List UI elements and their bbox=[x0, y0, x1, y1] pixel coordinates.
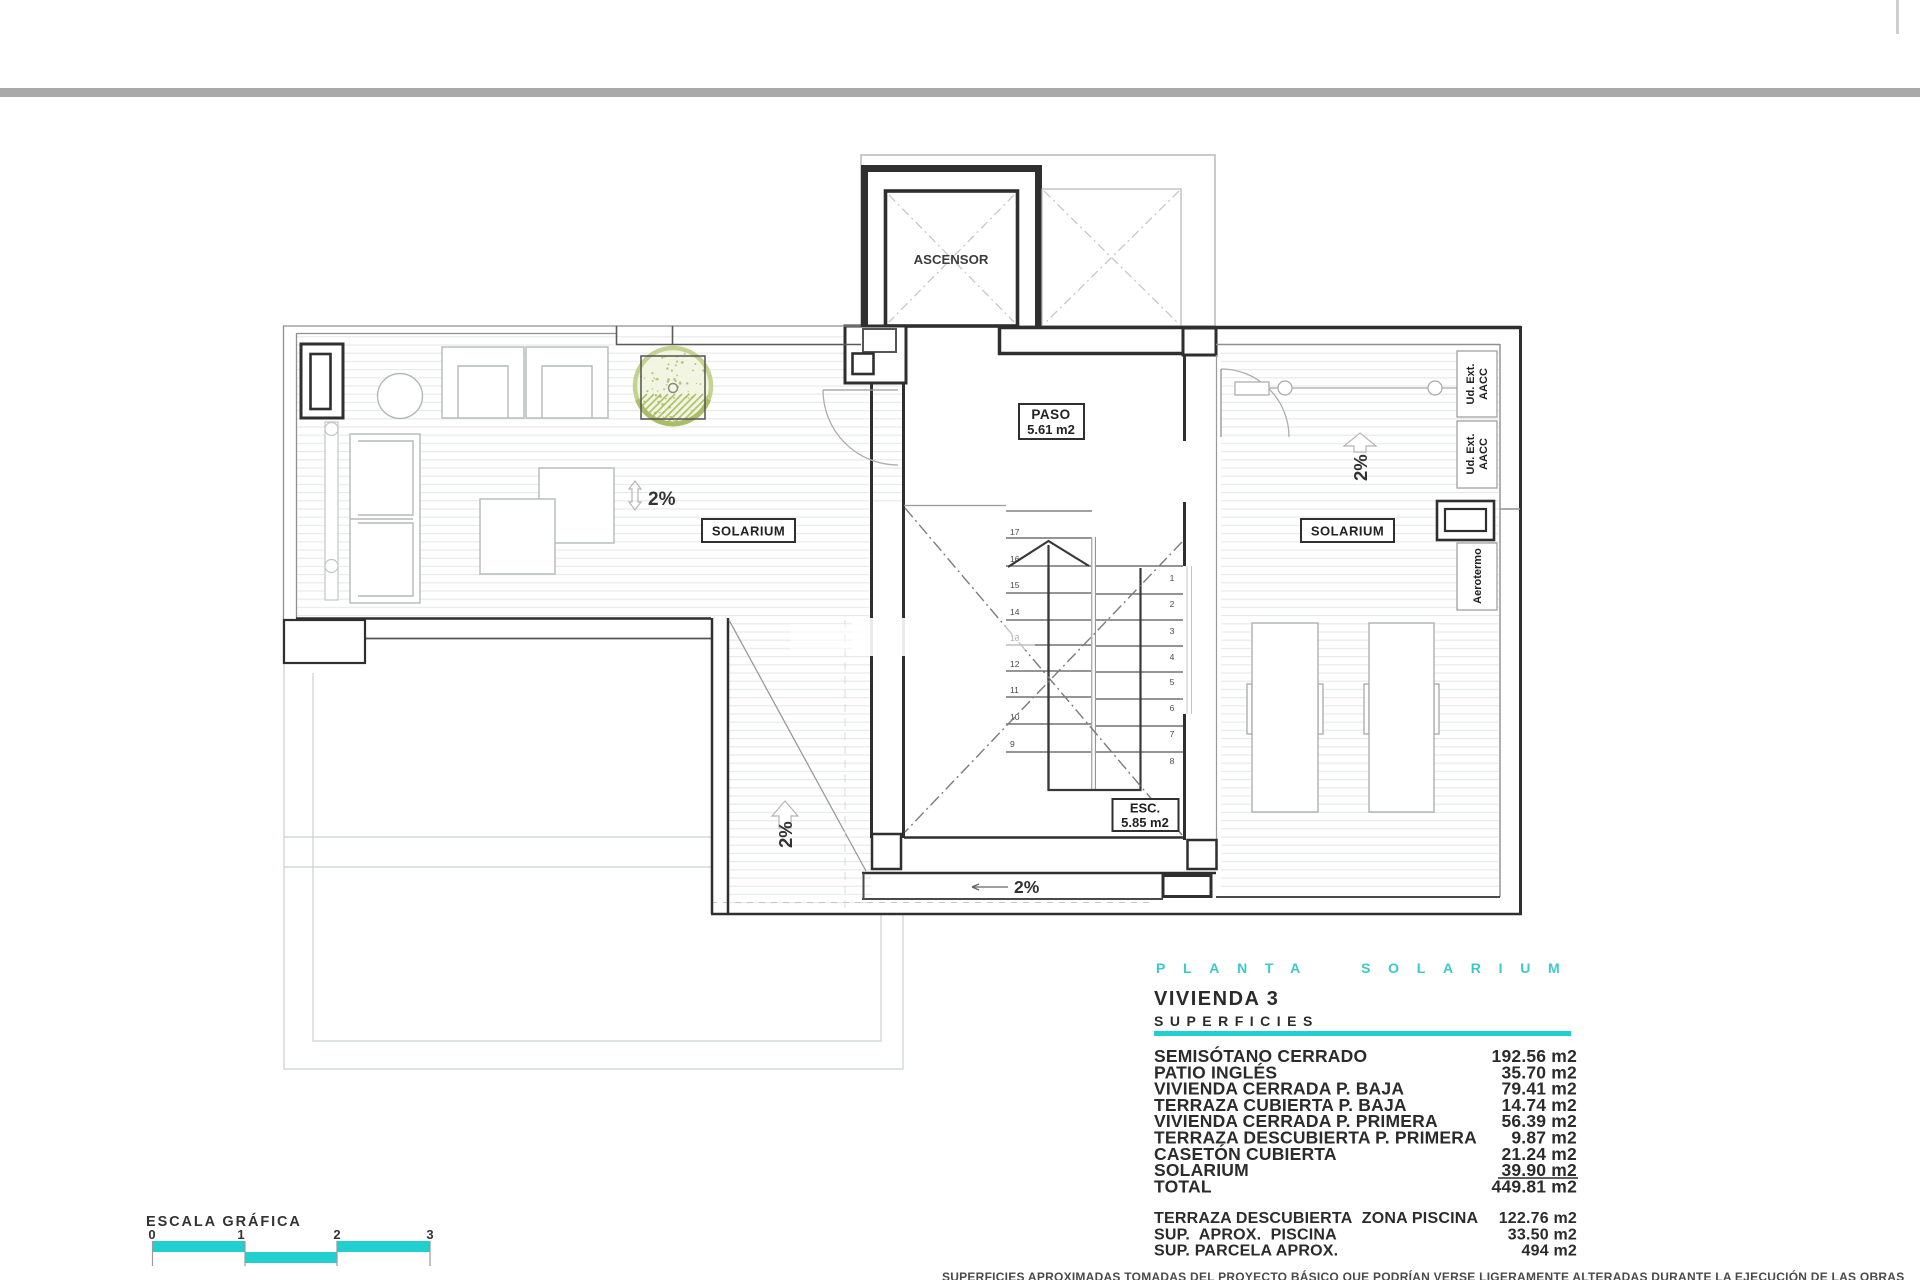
svg-text:2%: 2% bbox=[1350, 454, 1371, 481]
svg-text:TOTAL: TOTAL bbox=[1154, 1176, 1212, 1196]
svg-text:15: 15 bbox=[1010, 580, 1020, 590]
svg-text:PASO: PASO bbox=[1031, 407, 1070, 422]
svg-text:Ud. Ext.: Ud. Ext. bbox=[1465, 434, 1477, 475]
svg-text:12: 12 bbox=[1010, 659, 1020, 669]
svg-text:14: 14 bbox=[1010, 607, 1020, 617]
svg-text:Aerotermo: Aerotermo bbox=[1472, 548, 1484, 604]
svg-text:2%: 2% bbox=[775, 821, 796, 848]
svg-text:2: 2 bbox=[1170, 599, 1175, 609]
svg-text:3: 3 bbox=[1170, 626, 1175, 636]
svg-text:AACC: AACC bbox=[1478, 438, 1490, 470]
svg-text:SUPERFICIES: SUPERFICIES bbox=[1154, 1013, 1319, 1029]
svg-text:8: 8 bbox=[1170, 756, 1175, 766]
svg-text:1: 1 bbox=[237, 1227, 244, 1242]
svg-text:33.50 m2: 33.50 m2 bbox=[1508, 1226, 1577, 1243]
svg-text:ESC.: ESC. bbox=[1130, 801, 1160, 816]
svg-text:5.61 m2: 5.61 m2 bbox=[1027, 422, 1075, 437]
svg-text:SUPERFICIES APROXIMADAS TOMADA: SUPERFICIES APROXIMADAS TOMADAS DEL PROY… bbox=[942, 1269, 1904, 1280]
svg-text:494 m2: 494 m2 bbox=[1522, 1243, 1577, 1260]
svg-text:7: 7 bbox=[1170, 729, 1175, 739]
svg-text:2%: 2% bbox=[648, 489, 676, 510]
svg-text:9: 9 bbox=[1010, 739, 1015, 749]
svg-text:2: 2 bbox=[333, 1227, 340, 1242]
svg-text:5.85 m2: 5.85 m2 bbox=[1121, 815, 1169, 830]
svg-text:VIVIENDA 3: VIVIENDA 3 bbox=[1154, 988, 1279, 1010]
svg-text:PLANTA SOLARIUM: PLANTA SOLARIUM bbox=[1156, 960, 1577, 976]
svg-text:SUP. APROX. PISCINA: SUP. APROX. PISCINA bbox=[1154, 1226, 1337, 1243]
svg-text:4: 4 bbox=[1170, 652, 1175, 662]
svg-text:SUP. PARCELA APROX.: SUP. PARCELA APROX. bbox=[1154, 1243, 1338, 1260]
svg-text:SOLARIUM: SOLARIUM bbox=[712, 524, 785, 539]
svg-text:2%: 2% bbox=[1014, 877, 1040, 897]
svg-text:11: 11 bbox=[1010, 685, 1019, 695]
svg-text:ESCALA GRÁFICA: ESCALA GRÁFICA bbox=[146, 1213, 302, 1230]
svg-text:AACC: AACC bbox=[1478, 368, 1490, 400]
svg-text:17: 17 bbox=[1010, 527, 1020, 537]
svg-text:1: 1 bbox=[1170, 573, 1175, 583]
svg-text:Ud. Ext.: Ud. Ext. bbox=[1465, 364, 1477, 405]
svg-text:122.76 m2: 122.76 m2 bbox=[1499, 1210, 1577, 1227]
svg-text:5: 5 bbox=[1170, 677, 1175, 687]
svg-text:449.81 m2: 449.81 m2 bbox=[1492, 1176, 1578, 1196]
svg-text:6: 6 bbox=[1170, 703, 1175, 713]
svg-text:TERRAZA DESCUBIERTA ZONA PISC: TERRAZA DESCUBIERTA ZONA PISCINA bbox=[1154, 1210, 1478, 1227]
svg-text:ASCENSOR: ASCENSOR bbox=[914, 252, 989, 267]
svg-text:3: 3 bbox=[426, 1227, 433, 1242]
svg-text:0: 0 bbox=[148, 1227, 155, 1242]
svg-text:SOLARIUM: SOLARIUM bbox=[1311, 524, 1384, 539]
